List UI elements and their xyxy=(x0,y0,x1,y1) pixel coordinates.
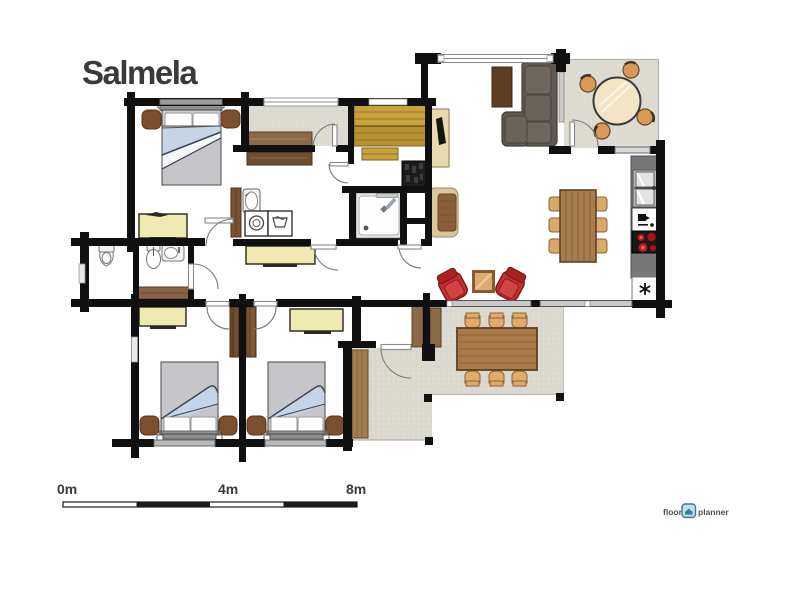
svg-text:0m: 0m xyxy=(57,481,77,497)
svg-text:Salmela: Salmela xyxy=(82,54,198,91)
svg-text:floor: floor xyxy=(663,507,683,517)
svg-text:4m: 4m xyxy=(218,481,238,497)
svg-text:8m: 8m xyxy=(346,481,366,497)
svg-text:planner: planner xyxy=(698,507,729,517)
